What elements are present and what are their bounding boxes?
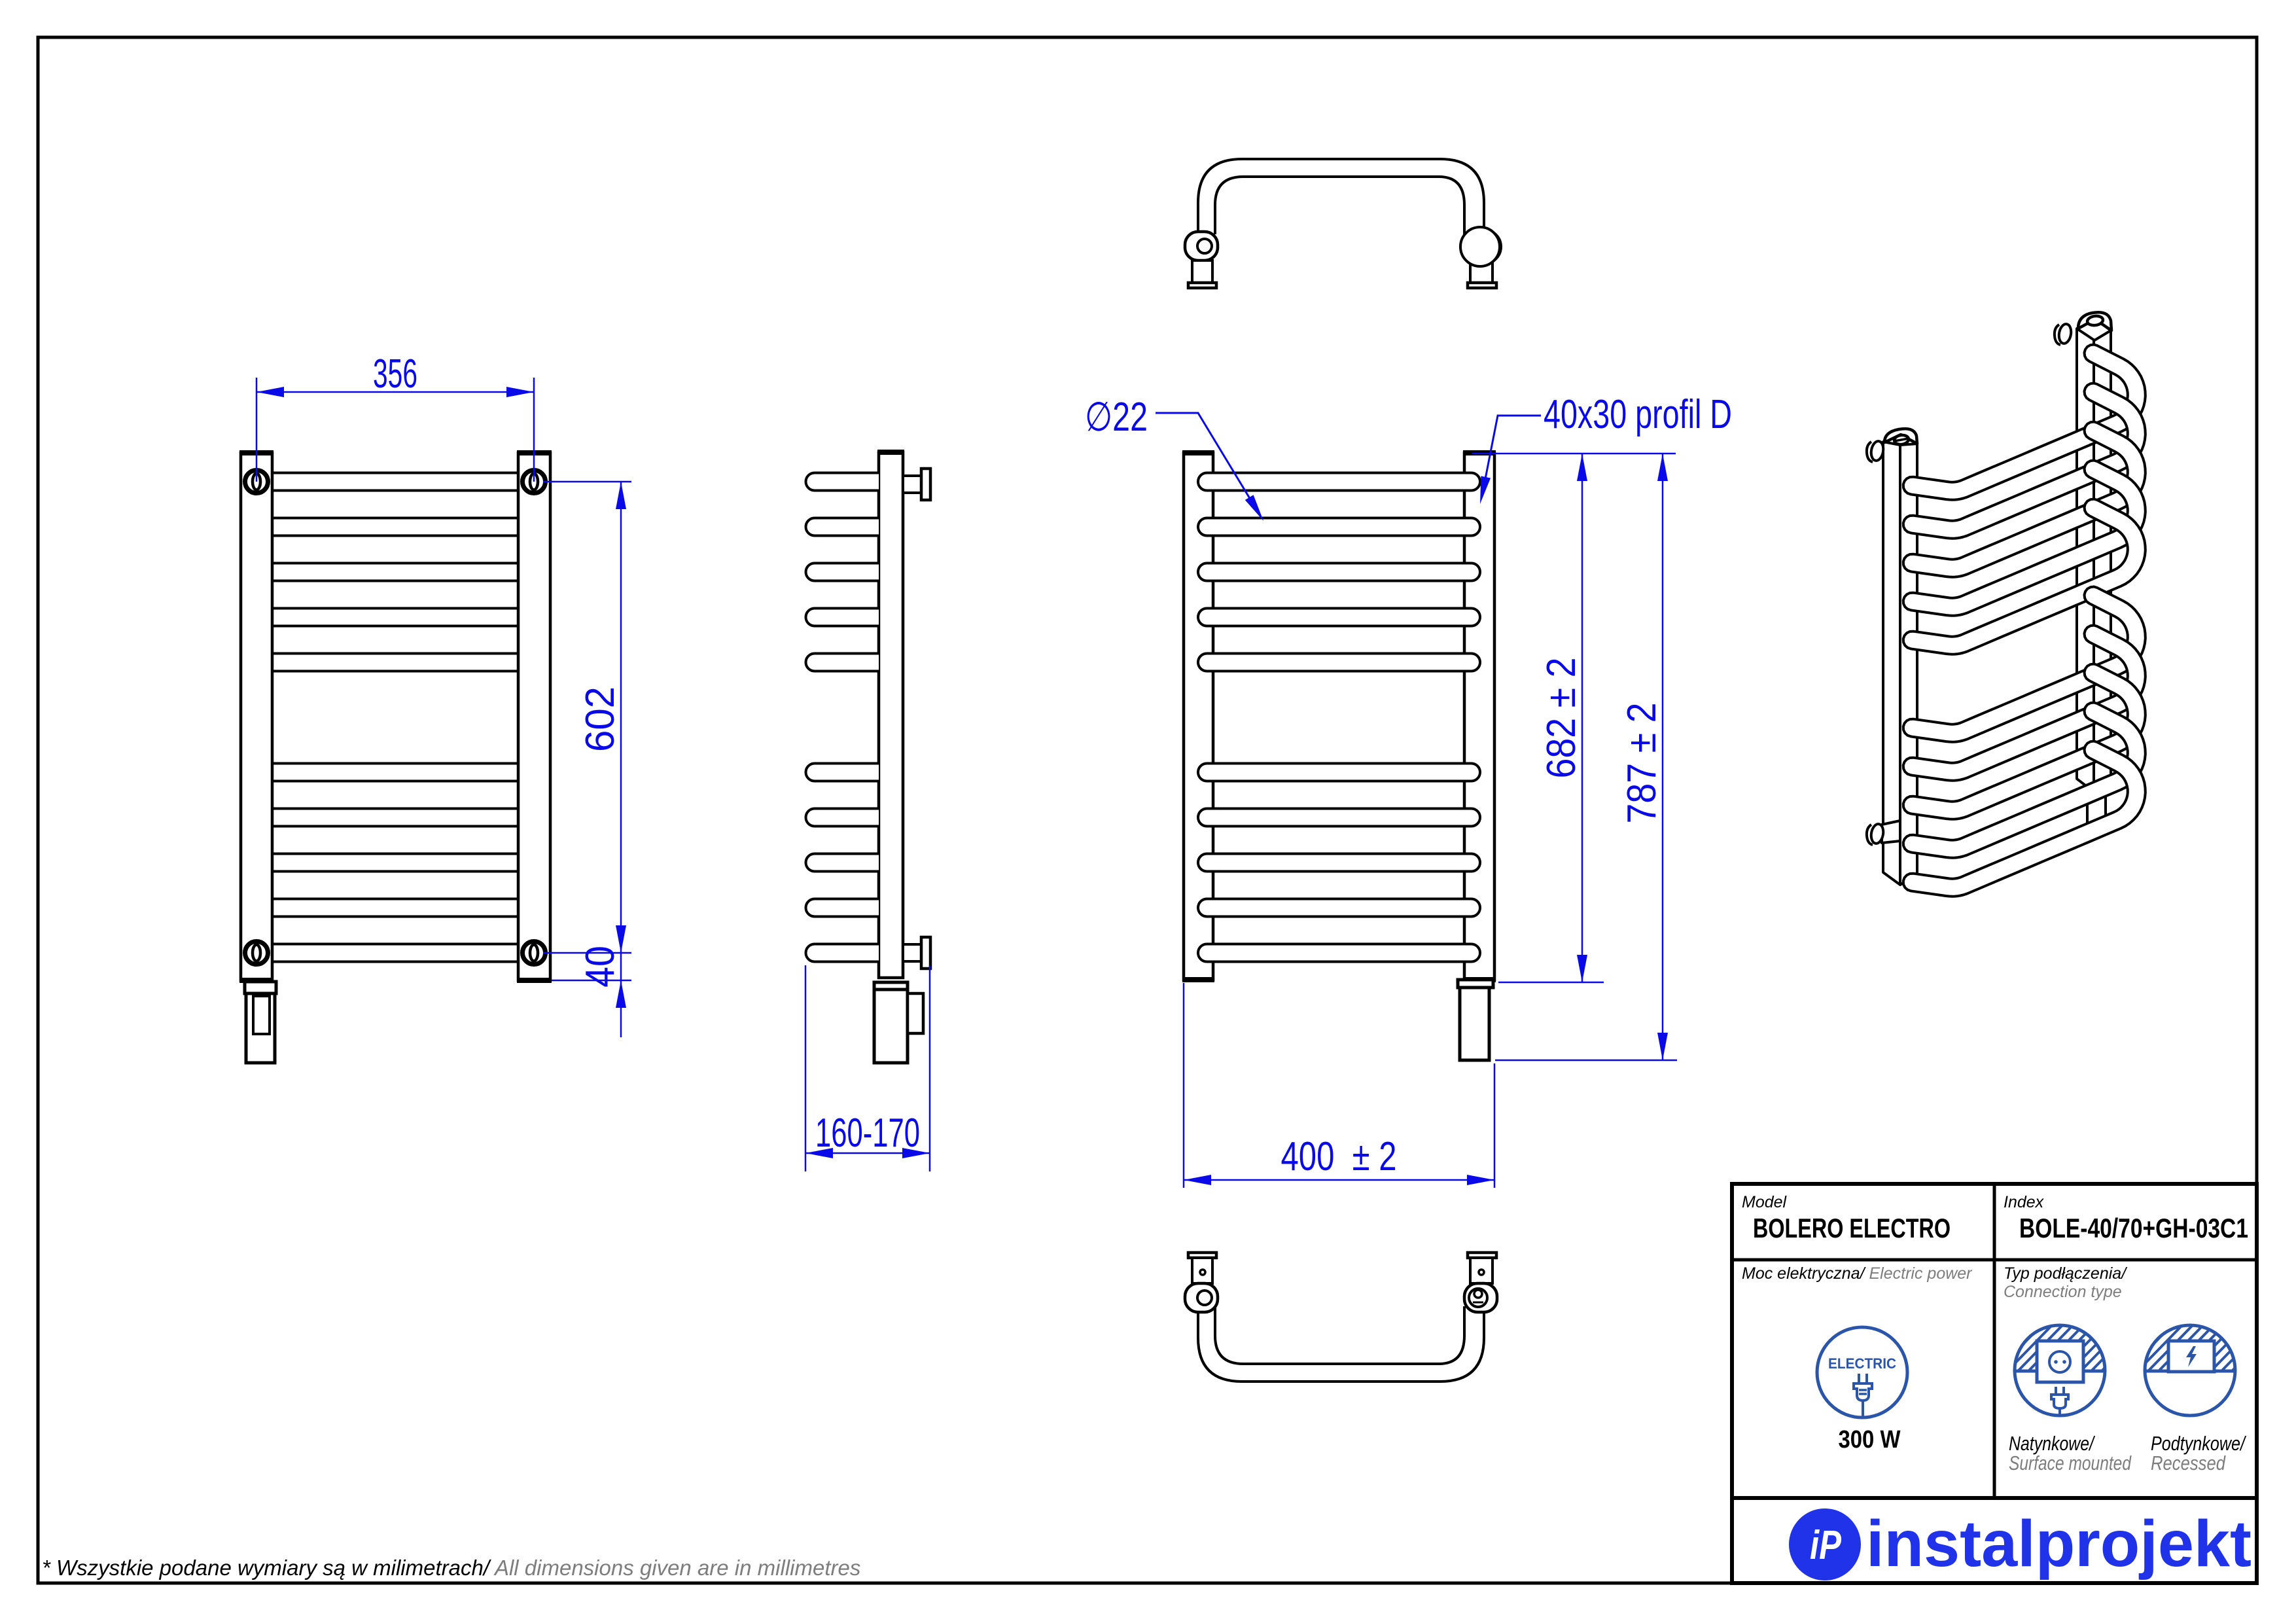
svg-text:instalprojekt: instalprojekt (1866, 1507, 2252, 1580)
svg-text:Connection type: Connection type (2004, 1283, 2122, 1301)
svg-text:Surface mounted: Surface mounted (2009, 1452, 2132, 1474)
svg-text:Index: Index (2004, 1193, 2045, 1211)
svg-text:Typ podłączenia/: Typ podłączenia/ (2004, 1264, 2128, 1283)
svg-text:400 ± 2: 400 ± 2 (1281, 1134, 1397, 1179)
svg-text:787 ± 2: 787 ± 2 (1619, 703, 1665, 824)
svg-text:BOLERO ELECTRO: BOLERO ELECTRO (1753, 1213, 1951, 1243)
svg-text:Model: Model (1742, 1193, 1788, 1211)
svg-text:160-170: 160-170 (815, 1111, 920, 1156)
svg-text:356: 356 (373, 351, 417, 397)
svg-text:40: 40 (578, 946, 623, 988)
svg-text:iP: iP (1810, 1523, 1842, 1568)
svg-text:Moc elektryczna/ Electric powe: Moc elektryczna/ Electric power (1742, 1264, 1973, 1283)
svg-text:BOLE-40/70+GH-03C1: BOLE-40/70+GH-03C1 (2019, 1213, 2248, 1243)
svg-text:Recessed: Recessed (2151, 1452, 2226, 1474)
svg-text:∅22: ∅22 (1085, 395, 1148, 440)
svg-text:602: 602 (578, 687, 623, 752)
svg-text:* Wszystkie podane wymiary są: * Wszystkie podane wymiary są w milimetr… (42, 1556, 860, 1580)
svg-text:300 W: 300 W (1839, 1426, 1901, 1454)
svg-text:40x30 profil D: 40x30 profil D (1544, 392, 1732, 437)
svg-text:ELECTRIC: ELECTRIC (1828, 1355, 1896, 1372)
svg-text:682 ± 2: 682 ± 2 (1539, 658, 1584, 779)
